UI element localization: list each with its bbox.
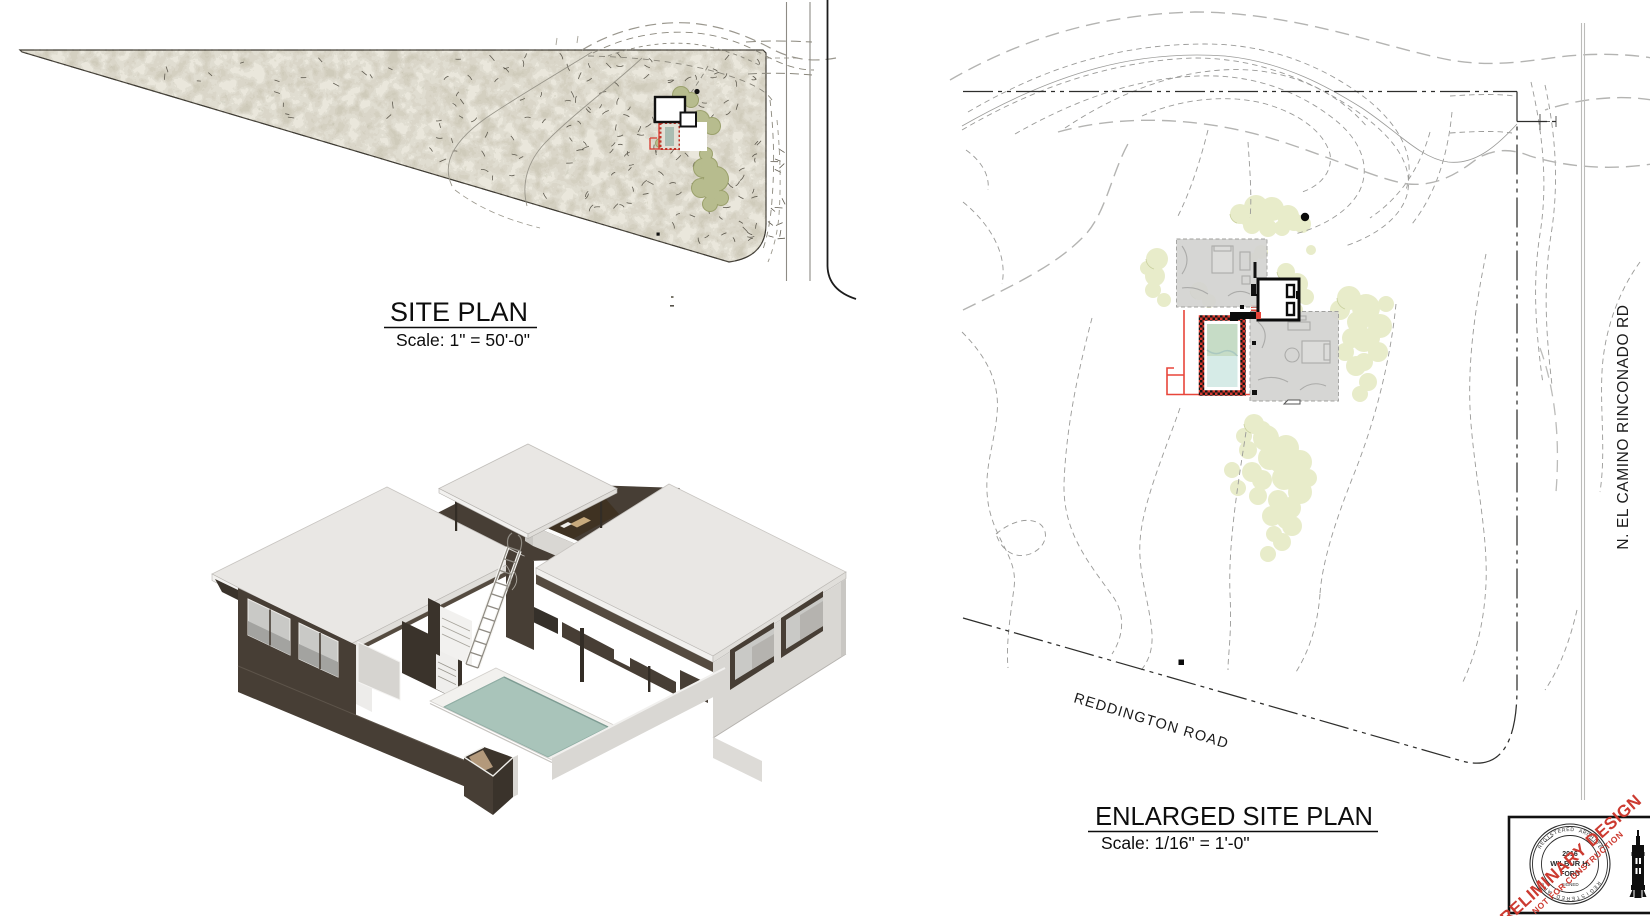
svg-text:N. EL CAMINO RINCONADO RD: N. EL CAMINO RINCONADO RD	[1615, 304, 1632, 549]
svg-text:R: R	[1566, 895, 1570, 901]
svg-text:Scale: 1/16" = 1'-0": Scale: 1/16" = 1'-0"	[1101, 833, 1250, 853]
svg-text:Scale: 1" = 50'-0": Scale: 1" = 50'-0"	[396, 330, 530, 350]
svg-text:ENLARGED SITE PLAN: ENLARGED SITE PLAN	[1095, 803, 1373, 831]
svg-text:REDDINGTON ROAD: REDDINGTON ROAD	[1072, 691, 1231, 753]
svg-text:SITE PLAN: SITE PLAN	[390, 297, 528, 327]
